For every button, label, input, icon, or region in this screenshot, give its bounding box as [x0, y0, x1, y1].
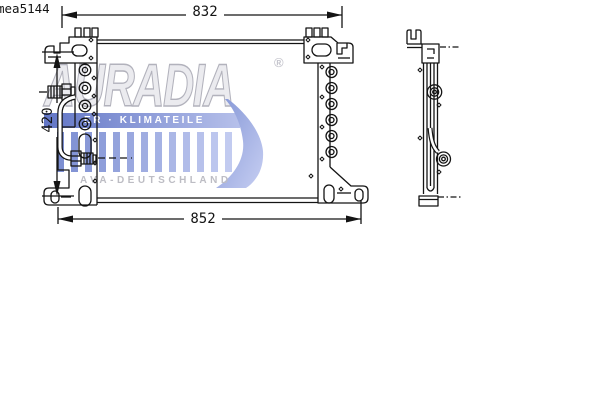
lower-pipe-fitting: [71, 151, 132, 166]
side-view: [407, 30, 461, 206]
dimension-top-width-label: 832: [186, 4, 224, 20]
left-top-bracket: [45, 28, 98, 63]
arrowhead-right: [346, 216, 361, 223]
side-lower-pipe: [430, 128, 451, 166]
arrowhead-right: [327, 12, 342, 19]
part-code-label: mea5144: [0, 1, 50, 16]
technical-drawing-page: AURADIA ® ER · KLIMATEILE AVA-DEUTSCHLAN…: [0, 0, 600, 400]
arrowhead-left: [58, 216, 73, 223]
condenser-technical-drawing: [0, 0, 600, 400]
core-edges: [97, 40, 318, 203]
right-bottom-bracket: [318, 167, 368, 203]
front-view: [39, 28, 368, 206]
side-top-bracket: [407, 30, 422, 48]
side-top-tank: [422, 44, 459, 63]
weld-point-markers: [89, 38, 441, 191]
arrowhead-up: [54, 53, 61, 68]
arrowhead-left: [62, 12, 77, 19]
dimension-bottom-width-label: 852: [184, 211, 222, 227]
right-header-tank: [318, 63, 337, 167]
right-top-bracket: [304, 28, 353, 63]
dimension-height-label: 420: [40, 99, 56, 141]
side-bottom-foot: [419, 196, 461, 206]
